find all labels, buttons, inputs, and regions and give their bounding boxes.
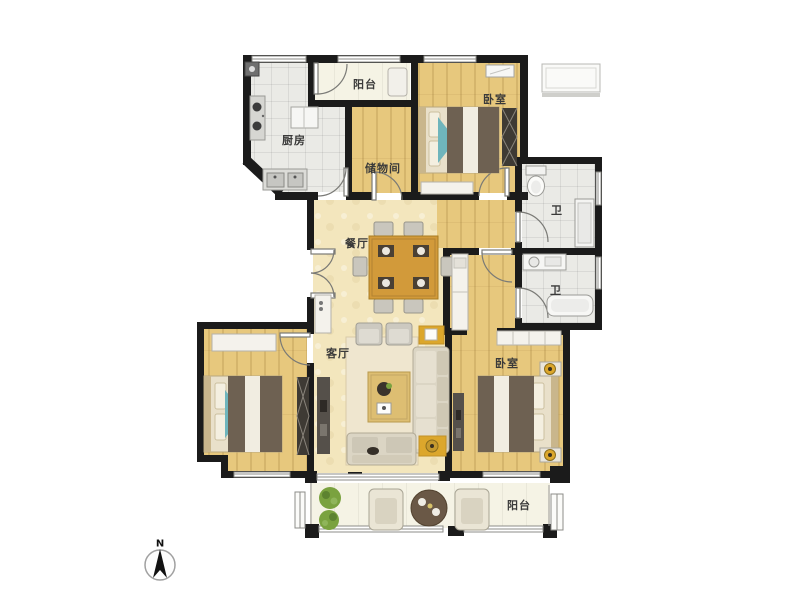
dining-chair [374, 299, 393, 313]
coffee-table [368, 372, 410, 422]
bed [478, 376, 558, 452]
armchair [386, 323, 412, 345]
balcony-side-window [551, 494, 563, 530]
floorplan-drawing [0, 0, 800, 600]
shower [575, 199, 594, 247]
room-label-bedroom-br: 卧室 [495, 355, 519, 371]
side-table [419, 436, 446, 456]
window [234, 472, 290, 477]
hallway-floor [437, 200, 515, 248]
equipment-platform [542, 64, 600, 97]
bed-bench [421, 182, 473, 194]
nightstand [540, 448, 561, 462]
dining-chair [404, 299, 423, 313]
room-label-balcony-bottom: 阳台 [507, 497, 531, 513]
dining-table [369, 236, 438, 299]
window [483, 472, 540, 477]
fridge [291, 107, 318, 128]
room-label-kitchen: 厨房 [282, 132, 306, 148]
dining-chair [404, 222, 423, 236]
window [596, 257, 601, 289]
room-label-dining: 餐厅 [345, 235, 369, 251]
dining-chair [353, 257, 367, 276]
compass-north-label: N [156, 539, 164, 550]
room-label-bath-lower: 卫 [550, 282, 562, 298]
balcony-side-window [295, 492, 305, 528]
room-label-bedroom-tr: 卧室 [483, 91, 507, 107]
round-table [411, 490, 447, 526]
plant [319, 487, 341, 509]
toilet [526, 166, 546, 196]
armchair [356, 323, 382, 345]
sliding-window [317, 474, 439, 480]
dresser [212, 334, 276, 351]
loveseat [347, 433, 416, 465]
armchair [369, 489, 403, 530]
wardrobe [297, 377, 309, 455]
water-heater [245, 62, 259, 76]
armchair [455, 489, 489, 530]
window [424, 56, 476, 62]
floorplan-canvas: 阳台 厨房 储物间 卧室 卫 卫 餐厅 客厅 卧室 阳台 N [0, 0, 800, 600]
window [596, 172, 601, 205]
room-label-balcony-top: 阳台 [353, 76, 377, 92]
wardrobe-top [497, 331, 561, 345]
hall-wardrobe [452, 254, 468, 330]
room-label-bath-upper: 卫 [551, 202, 563, 218]
plant [319, 510, 339, 530]
shoe-cabinet [315, 295, 331, 333]
dining-chair [374, 222, 393, 236]
window [252, 56, 306, 62]
wardrobe [502, 108, 517, 166]
ac-unit [486, 65, 514, 77]
balcony-top-cabinet [388, 68, 407, 96]
sink [263, 169, 307, 190]
vanity-sink [523, 254, 566, 270]
tv-stand [453, 393, 464, 451]
stove [250, 96, 265, 140]
nightstand [540, 362, 561, 376]
side-table [419, 326, 444, 344]
window [338, 56, 400, 62]
room-label-storage: 储物间 [365, 160, 401, 176]
storage-floor [352, 107, 412, 193]
bathtub [547, 295, 593, 316]
compass [145, 549, 175, 580]
bed [419, 107, 499, 173]
bed [204, 376, 282, 452]
tv-stand [317, 377, 330, 454]
room-label-living: 客厅 [326, 345, 350, 361]
